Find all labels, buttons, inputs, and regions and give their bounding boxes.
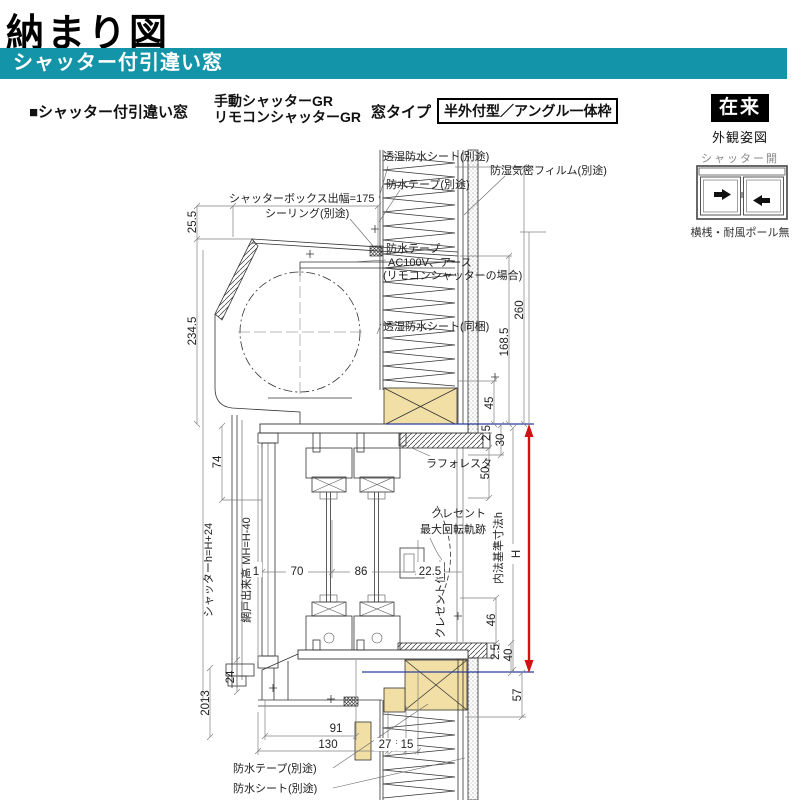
dim-24: 24 — [225, 670, 237, 683]
shutter-box-lid — [215, 239, 258, 320]
dim-50: 50 — [480, 467, 492, 480]
label-tape-bottom: 防水テープ(別途) — [233, 761, 317, 775]
head-interior-trim — [400, 433, 483, 448]
dim-40: 40 — [503, 649, 515, 662]
dim-234-5: 234.5 — [187, 317, 199, 346]
exterior-sash — [306, 448, 352, 650]
dim-74: 74 — [212, 455, 224, 468]
dim-46: 46 — [486, 614, 498, 627]
label-h: H — [511, 550, 523, 558]
label-sheet-mid: 透湿防水シート(同梱) — [383, 319, 489, 333]
dim-2-5b: 2.5 — [490, 644, 502, 660]
sealing-block — [370, 246, 382, 256]
dim-25-5: 25.5 — [187, 211, 199, 233]
label-box-depth: シャッターボックス出幅=175 — [229, 191, 374, 205]
dim-15: 15 — [401, 739, 414, 751]
label-tape-top: 防水テープ(別途) — [386, 177, 470, 191]
label-tape-mid: 防水テープ — [386, 241, 440, 255]
screen-door — [258, 433, 278, 668]
upper-wall-section — [380, 150, 490, 448]
dim-260: 260 — [514, 300, 526, 319]
shutter-type-list: 手動シャッターGR リモコンシャッターGR — [214, 93, 361, 125]
label-sheet-top: 透湿防水シート(別途) — [383, 149, 489, 163]
frame-type-badge: 半外付型／アングル一体枠 — [437, 98, 618, 124]
dim-45: 45 — [484, 397, 496, 410]
shutter-type-manual: 手動シャッターGR — [214, 93, 361, 109]
section-header-bar: シャッター付引違い窓 — [0, 48, 787, 79]
dim-30: 30 — [495, 434, 507, 447]
interior-sash — [354, 448, 400, 650]
label-power: AC100V、アース — [388, 257, 472, 269]
label-inner-std: 内法基準寸法h — [491, 512, 505, 584]
catalog-page: 納まり図 シャッター付引違い窓 ■シャッター付引違い窓 手動シャッターGR リモ… — [0, 0, 800, 800]
label-shutter-height: シャッターh=H+24 — [202, 523, 215, 617]
label-power2: (リモコンシャッターの場合) — [383, 268, 522, 282]
dim-168-5: 168.5 — [499, 328, 511, 357]
dim-2-5a: 2.5 — [481, 425, 493, 441]
dim-1: 1 — [253, 566, 259, 578]
dim-86: 86 — [355, 566, 368, 578]
construction-method-badge: 在来 — [711, 94, 769, 122]
subsection-heading: ■シャッター付引違い窓 — [29, 101, 188, 122]
label-sealing: シーリング(別途) — [265, 206, 349, 220]
section-detail-drawing: 透湿防水シート(別途) 防湿気密フィルム(別途) 防水テープ(別途) シャッター… — [0, 140, 800, 800]
dim-57: 57 — [512, 689, 524, 702]
dim-130: 130 — [318, 739, 337, 751]
dim-22-5: 22.5 — [419, 566, 441, 578]
lower-wall-section — [355, 643, 494, 800]
dim-70: 70 — [291, 566, 304, 578]
label-film: 防湿気密フィルム(別途) — [490, 163, 607, 177]
label-crescent2: 最大回転軌跡 — [420, 522, 486, 536]
dim-27: 27 — [379, 739, 392, 751]
dim-91: 91 — [330, 723, 343, 735]
window-type-label: 窓タイプ — [371, 101, 431, 122]
label-sheet-bottom: 防水シート(別途) — [233, 781, 317, 795]
dim-2013: 2013 — [200, 690, 212, 716]
shutter-type-remote: リモコンシャッターGR — [214, 109, 361, 125]
label-crescent1: クレセント — [431, 507, 486, 520]
